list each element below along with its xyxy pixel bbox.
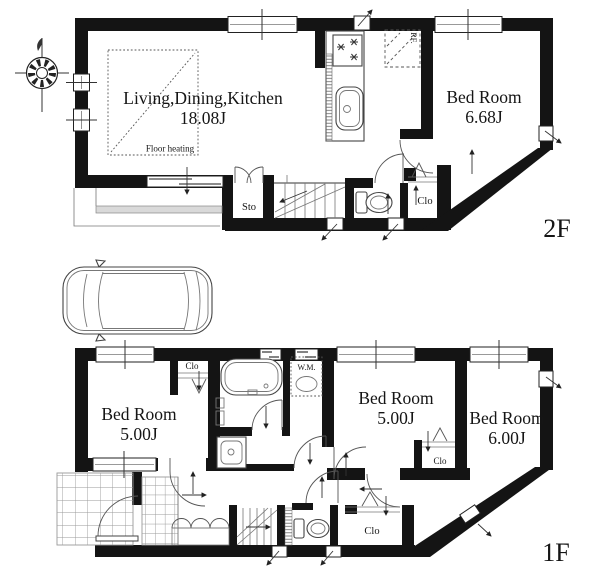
window-bed3-top xyxy=(470,340,528,369)
closet-bed1: Clo xyxy=(178,361,208,393)
floor-1f-label: 1F xyxy=(542,538,569,567)
storage-2f: Sto xyxy=(235,167,263,213)
closet-hall: Clo xyxy=(345,492,400,537)
floor-plan-image: Floor heating Living,Dining,Kitchen 18.0… xyxy=(0,0,600,575)
vent-kitchen-top xyxy=(354,10,372,30)
kitchen: RF. xyxy=(326,30,420,141)
bedroom3-area-label: 6.00J xyxy=(488,428,526,448)
car-icon xyxy=(63,260,212,341)
closet-2f-label: Clo xyxy=(417,196,432,207)
bath-door xyxy=(252,400,282,436)
window-bath-top xyxy=(260,349,281,360)
hanger-pole-icon xyxy=(433,428,447,441)
washroom-door xyxy=(294,436,326,468)
stove-icon xyxy=(333,35,362,66)
window-ldk-left-1 xyxy=(66,74,97,91)
room-bedroom2: Bed Room 5.00J Clo xyxy=(322,388,455,479)
stairs-1f xyxy=(237,508,277,545)
ldk-name-label: Living,Dining,Kitchen xyxy=(123,88,283,108)
vent-bed3-right xyxy=(539,371,561,388)
toilet-icon-2f xyxy=(356,192,392,213)
window-bedroom-2f-top xyxy=(435,9,502,40)
bedroom3-name-label: Bed Room xyxy=(469,408,545,428)
storage-label: Sto xyxy=(242,202,256,213)
toilet-sliding-door xyxy=(285,508,292,545)
door-bedroom3 xyxy=(360,474,400,507)
bedroom1-area-label: 5.00J xyxy=(120,424,158,444)
washing-machine-space: W.M. xyxy=(291,357,322,396)
window-balcony-sash xyxy=(147,167,223,194)
bedroom-2f-name-label: Bed Room xyxy=(446,87,522,107)
closet-hall-label: Clo xyxy=(364,526,379,537)
bathroom xyxy=(216,359,282,436)
entry-tiles xyxy=(142,477,178,545)
room-ldk: Floor heating Living,Dining,Kitchen 18.0… xyxy=(108,50,283,155)
washing-machine-label: W.M. xyxy=(298,363,316,372)
closet-bed2: Clo xyxy=(422,428,455,466)
floor-heating-label: Floor heating xyxy=(146,144,195,154)
floor-2f-plan: Floor heating Living,Dining,Kitchen 18.0… xyxy=(15,9,571,243)
refrigerator-label: RF. xyxy=(409,32,418,43)
bathtub-icon xyxy=(221,359,282,395)
toilet-icon-1f xyxy=(294,519,329,538)
closet-bed2-label: Clo xyxy=(433,456,447,466)
balcony xyxy=(74,188,222,226)
tiled-areas xyxy=(57,473,178,545)
window-bed2-top xyxy=(337,340,415,369)
bedroom2-name-label: Bed Room xyxy=(358,388,434,408)
window-bed1-top xyxy=(96,340,154,369)
vent-bedroom-right xyxy=(539,126,561,143)
shoe-closet xyxy=(172,519,229,546)
floor-plan-svg: Floor heating Living,Dining,Kitchen 18.0… xyxy=(0,0,600,575)
washbasin-icon xyxy=(217,437,246,468)
refrigerator-space: RF. xyxy=(385,30,420,67)
stairs-2f xyxy=(274,175,345,218)
window-wm-top xyxy=(295,349,318,360)
window-ldk-top xyxy=(228,9,297,40)
bedroom-2f-area-label: 6.68J xyxy=(465,107,503,127)
kitchen-sink-icon xyxy=(336,87,363,130)
floor-2f-label: 2F xyxy=(543,214,570,243)
storage-double-doors xyxy=(235,167,263,183)
closet-bed1-label: Clo xyxy=(185,361,199,371)
north-compass-icon xyxy=(15,38,69,112)
window-ldk-left-2 xyxy=(66,109,97,131)
bedroom1-name-label: Bed Room xyxy=(101,404,177,424)
bedroom2-area-label: 5.00J xyxy=(377,408,415,428)
ldk-area-label: 18.08J xyxy=(180,108,226,128)
floor-1f-plan: Bed Room 5.00J Clo W.M. Bed Room 5.00J xyxy=(57,260,570,567)
porch-tiles xyxy=(57,473,133,545)
hanger-pole-icon xyxy=(362,492,378,506)
toilet-door-2f xyxy=(375,154,404,183)
